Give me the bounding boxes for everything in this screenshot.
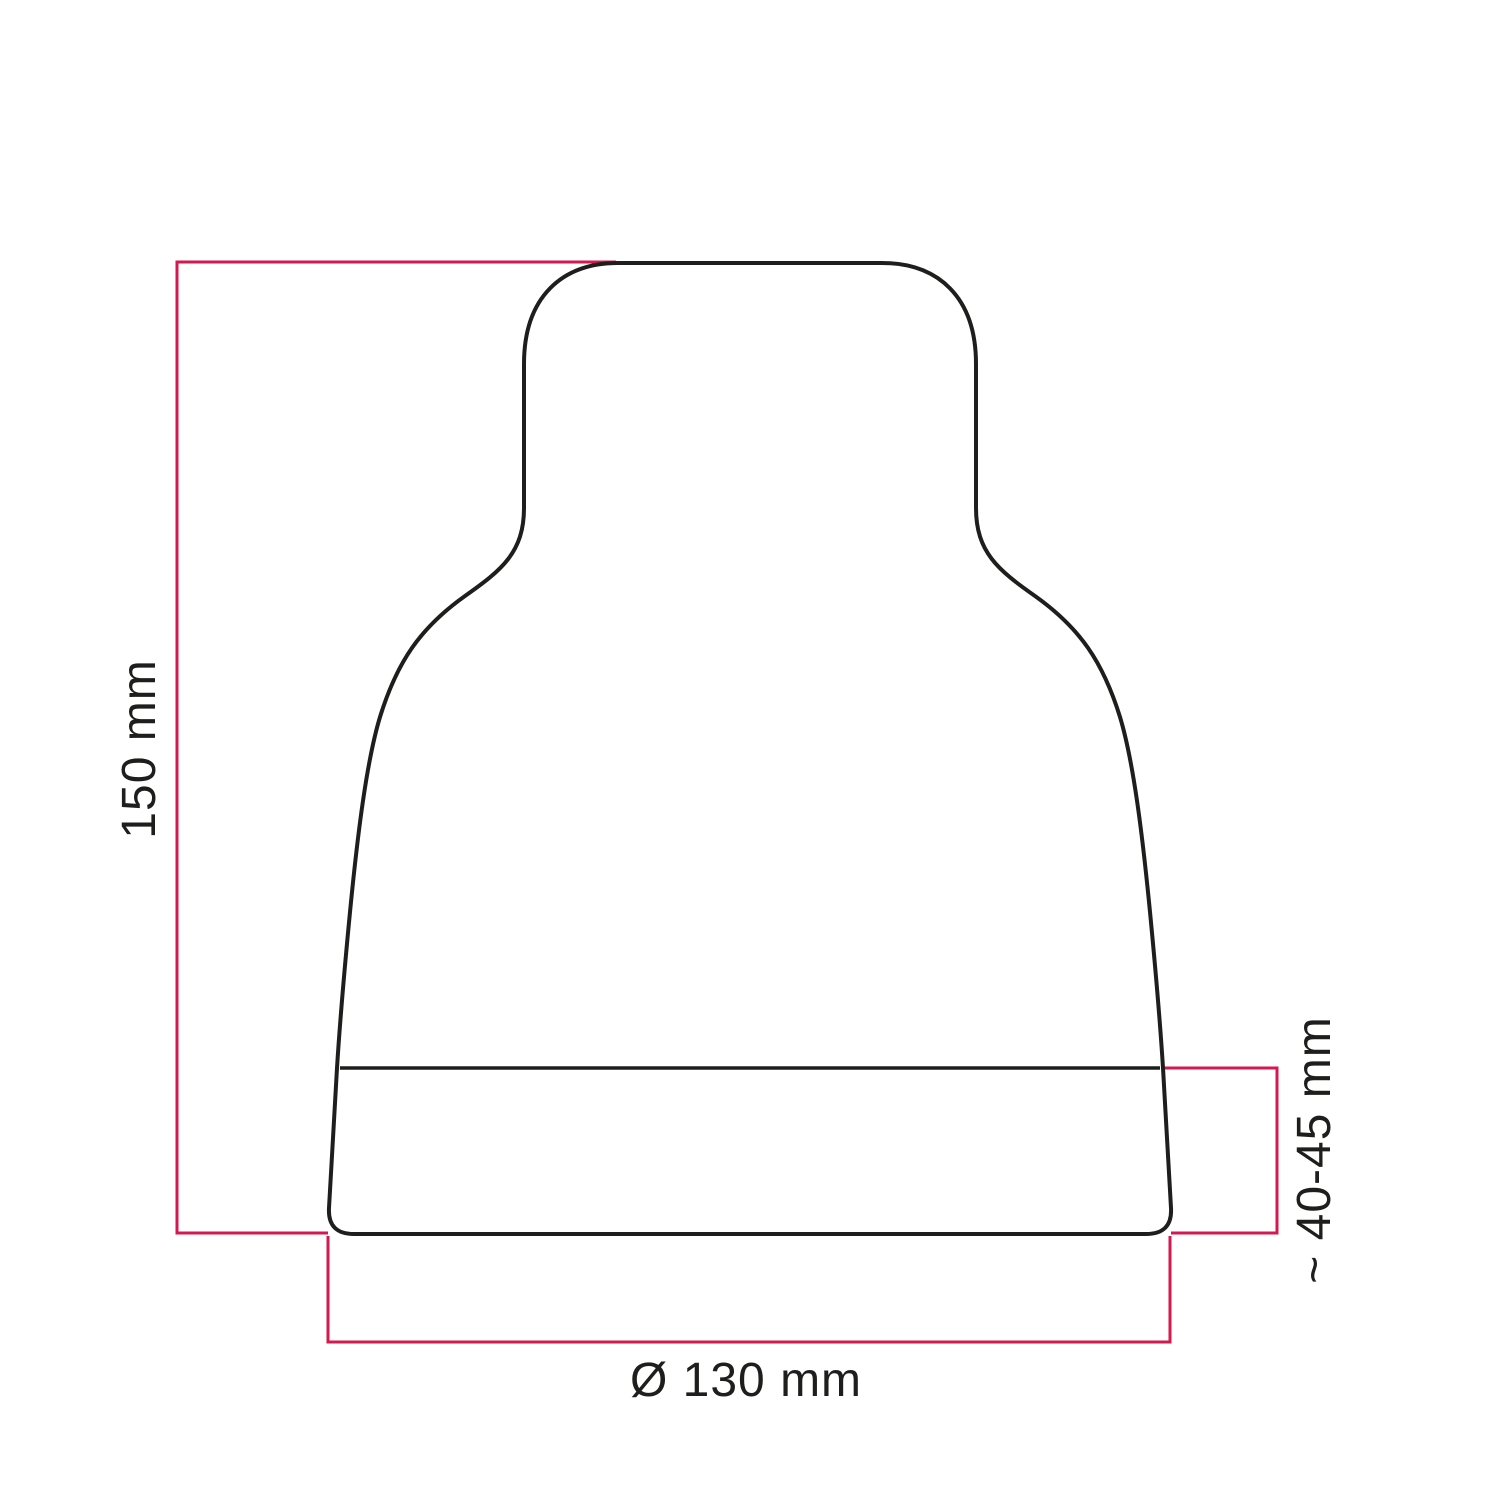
- height-dimension-bracket: [177, 262, 616, 1233]
- dimension-diagram: 150 mm ~ 40-45 mm Ø 130 mm: [0, 0, 1500, 1500]
- diameter-dimension-bracket: [328, 1236, 1170, 1342]
- lampshade-outline: [329, 263, 1171, 1234]
- base-band-dimension-bracket: [1162, 1068, 1277, 1233]
- diameter-dimension-label: Ø 130 mm: [630, 1354, 862, 1407]
- height-dimension-label: 150 mm: [113, 659, 166, 838]
- diagram-svg: 150 mm ~ 40-45 mm Ø 130 mm: [0, 0, 1500, 1500]
- base-band-dimension-label: ~ 40-45 mm: [1288, 1016, 1341, 1283]
